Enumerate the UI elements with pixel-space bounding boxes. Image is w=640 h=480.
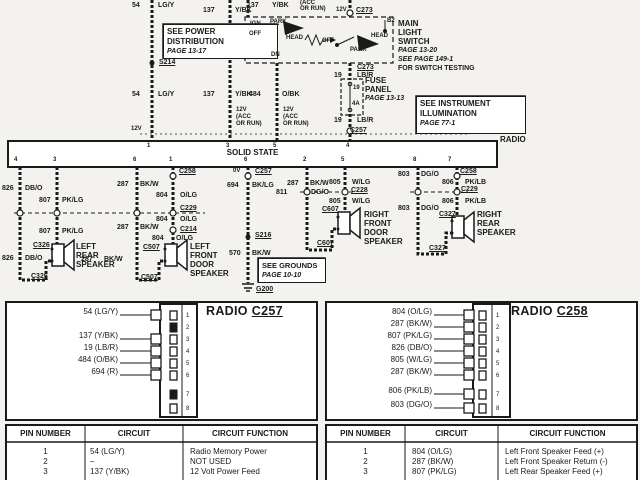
wire-label: W/LG [352, 198, 370, 205]
table-cell: Left Front Speaker Return (-) [505, 458, 608, 466]
wire-label: BK/W [104, 256, 123, 263]
pin-number: 6 [244, 157, 247, 163]
connector-pin-number: 2 [186, 325, 189, 331]
speaker-name: RIGHT [477, 211, 502, 219]
connector-pin-number: 7 [496, 392, 499, 398]
connector-label-c327: C327 [439, 211, 456, 218]
connector-wire-label: 484 (O/BK) [38, 356, 118, 364]
fuse-number: 19 [353, 85, 360, 91]
mls-line: FOR SWITCH TESTING [398, 64, 475, 73]
connector-wire-label: 137 (Y/BK) [38, 332, 118, 340]
wire-label: BK/W [310, 180, 329, 187]
table-cell: 12 Volt Power Feed [190, 468, 260, 476]
fuse-panel-text: FUSE PANEL PAGE 13-13 [365, 76, 404, 103]
fuse-symbol [348, 82, 352, 112]
wire-label: 287 [287, 180, 299, 187]
pin-number: 5 [341, 157, 344, 163]
connector-label-c327: C327 [429, 245, 446, 252]
panel-title-radio: RADIO [206, 304, 252, 318]
table-header: PIN NUMBER [6, 430, 85, 438]
wire-label: 803 [398, 171, 410, 178]
voltage-label: 12V [131, 126, 142, 132]
wire-label: 287 [117, 224, 129, 231]
voltage-label: 12V [336, 7, 347, 13]
mls-line: PAGE 13-20 [398, 46, 475, 55]
speaker-name: LEFT [76, 243, 96, 251]
table-header: PIN NUMBER [326, 430, 405, 438]
wire-label: LG/Y [158, 2, 174, 9]
speaker-name: SPEAKER [364, 238, 403, 246]
mls-line: MAIN [398, 19, 475, 28]
table-header: CIRCUIT FUNCTION [183, 430, 317, 438]
switch-label: HEAD [286, 35, 303, 41]
wire-label: LB/R [357, 117, 373, 124]
connector-label-c228: C228 [351, 187, 368, 194]
wire-label: 806 [442, 179, 454, 186]
voltage-label: 12V [236, 107, 247, 113]
connector-label-c257: C257 [350, 127, 367, 134]
acc-label: OR RUN) [300, 6, 326, 12]
pin-number: 5 [273, 143, 276, 149]
connector-pin-number: 5 [496, 361, 499, 367]
wire-label: Y/BK [272, 2, 289, 9]
wire-label: 804 [152, 235, 164, 242]
acc-label: (ACC [236, 114, 251, 120]
wire-label: 137 [203, 91, 215, 98]
voltage-label: 12V [283, 107, 294, 113]
panel-title-c258: RADIOC258 [511, 305, 588, 318]
connector-pin-number: 7 [186, 392, 189, 398]
connector-wire-label: 805 (W/LG) [350, 356, 432, 364]
wire-label: 804 [156, 216, 168, 223]
table-header: CIRCUIT [85, 430, 183, 438]
switch-label: HEAD [371, 33, 388, 39]
wire-label: 807 [39, 228, 51, 235]
see-power-distribution-box: SEE POWER DISTRIBUTION PAGE 13-17 [163, 24, 278, 59]
table-cell: 1 [6, 448, 85, 456]
connector-wire-label: 806 (PK/LB) [350, 387, 432, 395]
panel-title-code: C257 [252, 304, 283, 318]
wire-label: DB/O [25, 185, 43, 192]
table-cell: 1 [326, 448, 405, 456]
table-cell: 2 [6, 458, 85, 466]
speaker-name: DOOR [190, 261, 214, 269]
wire-label: BK/W [252, 250, 271, 257]
wire-label: 54 [132, 2, 140, 9]
switch-label: IGN [250, 21, 261, 27]
connector-label-c607: C607 [322, 206, 339, 213]
voltage-label: 0V [233, 168, 240, 174]
pin-number: 3 [226, 143, 229, 149]
wire-label: 137 [247, 2, 259, 9]
acc-label: (ACC [283, 114, 298, 120]
connector-label-c326: C326 [31, 273, 48, 280]
connector-label-c229: C229 [461, 186, 478, 193]
connector-wire-label: 287 (BK/W) [350, 368, 432, 376]
splice-label-s214: S214 [159, 59, 175, 66]
speaker-name: SPEAKER [477, 229, 516, 237]
table-cell: Radio Memory Power [190, 448, 267, 456]
connector-wire-label: 287 (BK/W) [350, 320, 432, 328]
pin-number: 2 [303, 157, 306, 163]
solid-state-label: SOLID STATE [8, 149, 497, 157]
connector-label-c607: C607 [317, 240, 334, 247]
acc-label: OR RUN) [283, 121, 309, 127]
wire-label: PK/LB [465, 198, 486, 205]
wire-label: 570 [229, 250, 241, 257]
connector-pin-number: 1 [186, 313, 189, 319]
table-cell: 3 [6, 468, 85, 476]
connector-pin-number: 8 [186, 406, 189, 412]
wire-label: O/LG [176, 235, 193, 242]
wire-label: 806 [442, 198, 454, 205]
pin-number: 1 [169, 157, 172, 163]
wire-label: BK/LG [252, 182, 274, 189]
table-cell: NOT USED [190, 458, 231, 466]
speaker-name: LEFT [190, 243, 210, 251]
box-line: ILLUMINATION [420, 109, 522, 119]
wire-label: PK/LG [62, 228, 83, 235]
wire-label: 19 [334, 72, 342, 79]
connector-pin-number: 3 [186, 337, 189, 343]
table-cell: 54 (LG/Y) [90, 448, 125, 456]
wire-label: DB/O [25, 255, 43, 262]
connector-label-c273: C273 [356, 7, 373, 14]
connector-wire-label: 803 (DG/O) [350, 401, 432, 409]
wire-label: O/LG [180, 192, 197, 199]
fuse-line: PANEL [365, 85, 404, 94]
wire-label: 19 [334, 117, 342, 124]
connector-pin-number: 4 [186, 349, 189, 355]
pin-number: 3 [53, 157, 56, 163]
box-line: SEE GROUNDS [262, 261, 322, 271]
wire-label: W/LG [352, 179, 370, 186]
connector-label-c214: C214 [180, 226, 197, 233]
panel-title-radio: RADIO [511, 304, 557, 318]
connector-label-c258: C258 [179, 168, 196, 175]
wire-label: 803 [398, 205, 410, 212]
wiring-diagram-page: 54 LG/Y SEE POWER DISTRIBUTION PAGE 13-1… [0, 0, 640, 480]
wire-label: 484 [249, 91, 261, 98]
box-line: PAGE 13-17 [167, 47, 274, 57]
fuse-rating: 4A [352, 101, 360, 107]
switch-label: PARK [350, 47, 367, 53]
connector-label-c507: C507 [143, 244, 160, 251]
connector-wire-label: 19 (LB/R) [38, 344, 118, 352]
pin-number: 6 [133, 157, 136, 163]
connector-pin-number: 8 [496, 406, 499, 412]
mls-line: SEE PAGE 149-1 [398, 55, 475, 64]
see-grounds-box: SEE GROUNDS PAGE 10-10 [258, 258, 326, 283]
speaker-name: SPEAKER [190, 270, 229, 278]
table-header: CIRCUIT [405, 430, 498, 438]
connector-wire-label: 54 (LG/Y) [38, 308, 118, 316]
wire-label: BK/W [140, 224, 159, 231]
table-cell: 804 (O/LG) [412, 448, 452, 456]
wire-label: DG/O [311, 189, 329, 196]
wire-label: PK/LG [62, 197, 83, 204]
mls-line: LIGHT [398, 28, 475, 37]
connector-label-c229: C229 [180, 205, 197, 212]
speaker-name: FRONT [190, 252, 218, 260]
ground-label-g200: G200 [256, 286, 273, 293]
wire-label: 54 [132, 91, 140, 98]
switch-label: OFF [249, 31, 261, 37]
wire-label: 287 [81, 256, 93, 263]
wire-label: LG/Y [158, 91, 174, 98]
wire-label: 805 [329, 179, 341, 186]
wire-label: 807 [39, 197, 51, 204]
connector-pin-number: 4 [496, 349, 499, 355]
table-cell: 137 (Y/BK) [90, 468, 129, 476]
connector-pin-number: 1 [496, 313, 499, 319]
splice-label-s216: S216 [255, 232, 271, 239]
switch-label: OFF [322, 38, 334, 44]
terminal-label-b2: B2 [387, 18, 395, 24]
connector-label-c507: C507 [141, 274, 158, 281]
box-line: DISTRIBUTION [167, 37, 274, 47]
main-light-switch-text: MAIN LIGHT SWITCH PAGE 13-20 SEE PAGE 14… [398, 19, 475, 73]
wire-label: 826 [2, 255, 14, 262]
pin-number: 7 [448, 157, 451, 163]
mls-line: SWITCH [398, 37, 475, 46]
connector-label-c273: C273 [357, 64, 374, 71]
wire-label: 287 [117, 181, 129, 188]
wire-label: BK/W [140, 181, 159, 188]
connector-label-c257: C257 [255, 168, 272, 175]
speaker-name: RIGHT [364, 211, 389, 219]
wire-label: 805 [329, 198, 341, 205]
box-line: SEE INSTRUMENT [420, 99, 522, 109]
wire-label: 694 [227, 182, 239, 189]
wire-label: 804 [156, 192, 168, 199]
see-instrument-illumination-box: SEE INSTRUMENT ILLUMINATION PAGE 77-1 [416, 96, 526, 134]
ground-symbol [242, 284, 254, 291]
connector-label-c258: C258 [460, 168, 477, 175]
connector-pin-number: 6 [496, 373, 499, 379]
connector-pin-number: 2 [496, 325, 499, 331]
acc-label: OR RUN) [236, 121, 262, 127]
pin-number: 8 [413, 157, 416, 163]
pin-number: 4 [14, 157, 17, 163]
connector-label-c326: C326 [33, 242, 50, 249]
table-cell: Left Rear Speaker Feed (+) [505, 468, 603, 476]
wire-label: PK/LB [465, 179, 486, 186]
connector-pin-number: 5 [186, 361, 189, 367]
table-cell: 287 (BK/W) [412, 458, 453, 466]
pin-number: 4 [346, 143, 349, 149]
table-cell: – [90, 458, 94, 466]
fuse-line: PAGE 13-13 [365, 94, 404, 103]
connector-wire-label: 804 (O/LG) [350, 308, 432, 316]
panel-title-c257: RADIOC257 [206, 305, 283, 318]
connector-pin-number: 3 [496, 337, 499, 343]
connector-pin-number: 6 [186, 373, 189, 379]
wire-label: DG/O [421, 205, 439, 212]
table-cell: 807 (PK/LG) [412, 468, 456, 476]
wire-label: 826 [2, 185, 14, 192]
radio-label: RADIO [500, 136, 526, 144]
speaker-name: FRONT [364, 220, 392, 228]
table-cell: Left Front Speaker Feed (+) [505, 448, 604, 456]
switch-label: DN [271, 52, 280, 58]
table-cell: 3 [326, 468, 405, 476]
table-header: CIRCUIT FUNCTION [498, 430, 637, 438]
wire-label: O/LG [180, 216, 197, 223]
box-line: PAGE 77-1 [420, 119, 522, 129]
speaker-name: DOOR [364, 229, 388, 237]
speaker-name: REAR [477, 220, 500, 228]
connector-wire-label: 694 (R) [38, 368, 118, 376]
switch-label: PARK [270, 19, 287, 25]
wire-label: 811 [276, 189, 287, 196]
wire-label: O/BK [282, 91, 300, 98]
box-line: PAGE 10-10 [262, 271, 322, 281]
wire-label: 137 [203, 7, 215, 14]
panel-title-code: C258 [557, 304, 588, 318]
wire-label: DG/O [421, 171, 439, 178]
connector-wire-label: 826 (DB/O) [350, 344, 432, 352]
pin-number: 1 [147, 143, 150, 149]
table-cell: 2 [326, 458, 405, 466]
fuse-line: FUSE [365, 76, 404, 85]
connector-wire-label: 807 (PK/LG) [350, 332, 432, 340]
